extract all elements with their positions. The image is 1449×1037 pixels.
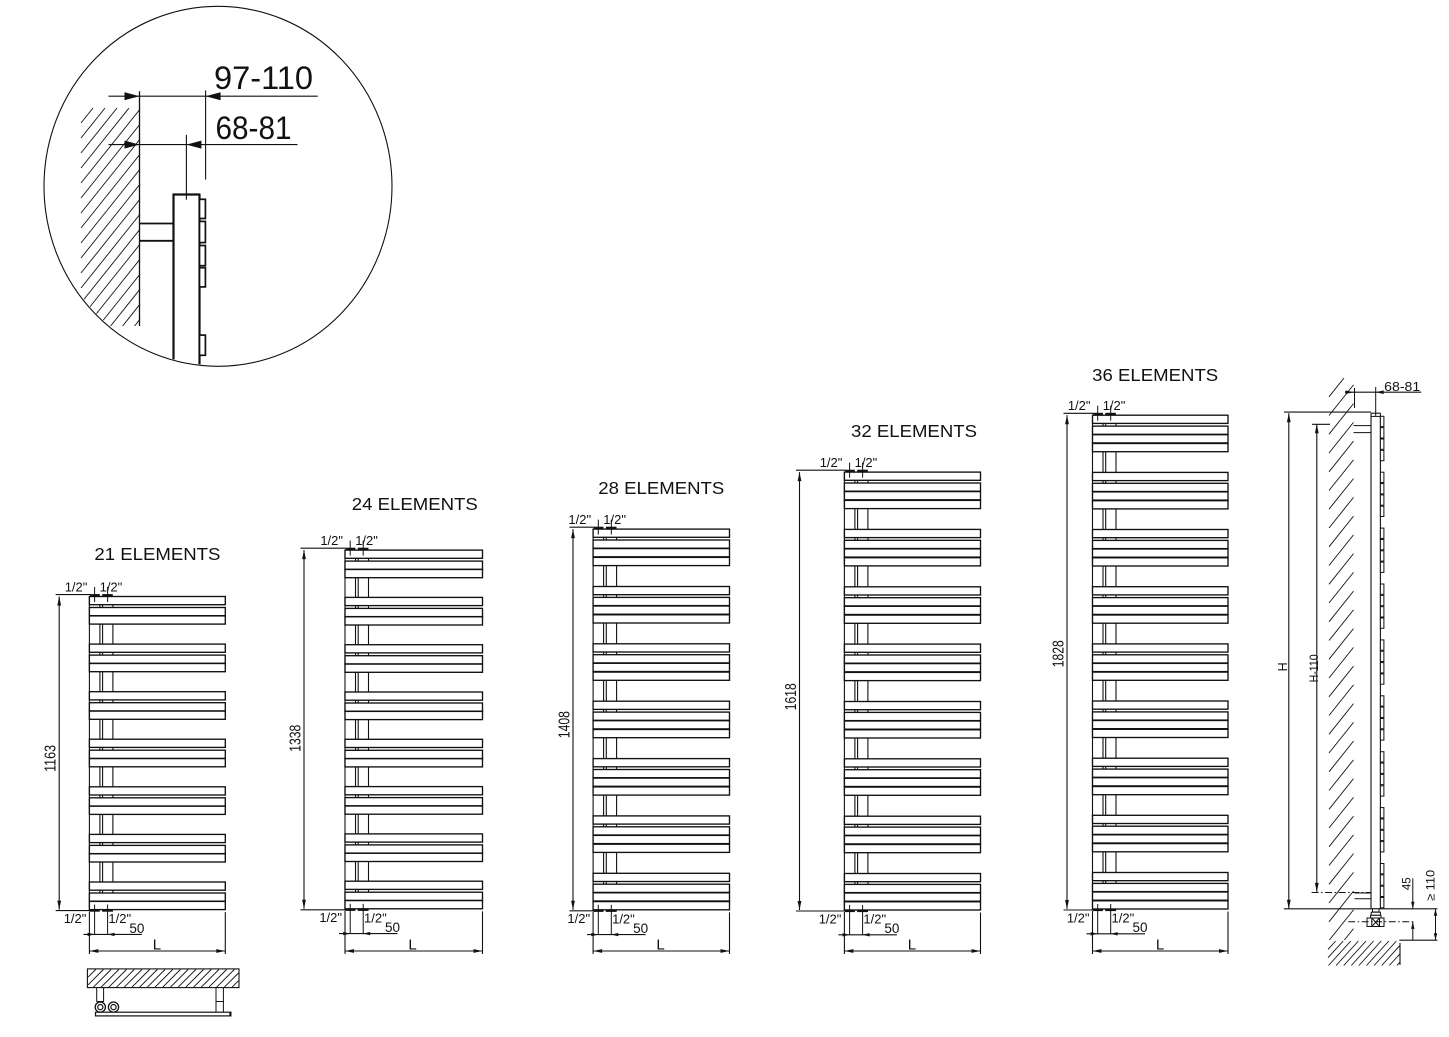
svg-text:H-110: H-110: [1307, 654, 1321, 682]
svg-text:L: L: [153, 937, 161, 954]
svg-text:50: 50: [633, 921, 648, 936]
svg-text:≥ 110: ≥ 110: [1423, 870, 1437, 901]
svg-text:1828: 1828: [1051, 640, 1068, 667]
svg-text:1/2": 1/2": [820, 455, 843, 470]
svg-text:1/2": 1/2": [1112, 911, 1135, 926]
svg-text:1338: 1338: [288, 725, 305, 752]
svg-text:1/2": 1/2": [1068, 398, 1091, 413]
svg-text:1163: 1163: [43, 745, 60, 772]
svg-text:1/2": 1/2": [319, 910, 342, 925]
svg-text:97-110: 97-110: [214, 60, 313, 96]
svg-text:L: L: [908, 937, 916, 954]
svg-text:50: 50: [884, 921, 899, 936]
svg-text:L: L: [408, 937, 416, 954]
svg-text:1/2": 1/2": [603, 512, 626, 527]
svg-text:50: 50: [385, 920, 400, 935]
svg-text:1/2": 1/2": [855, 455, 878, 470]
svg-text:1/2": 1/2": [568, 512, 591, 527]
svg-text:H: H: [1276, 662, 1290, 671]
svg-text:1/2": 1/2": [1103, 398, 1126, 413]
svg-text:1/2": 1/2": [819, 911, 842, 926]
svg-text:45: 45: [1402, 877, 1414, 890]
svg-text:21 ELEMENTS: 21 ELEMENTS: [94, 544, 220, 564]
svg-text:1/2": 1/2": [100, 579, 123, 594]
svg-text:68-81: 68-81: [216, 110, 292, 146]
svg-text:1/2": 1/2": [1067, 910, 1090, 925]
svg-text:1/2": 1/2": [108, 911, 131, 926]
svg-text:1/2": 1/2": [65, 579, 88, 594]
svg-text:68-81: 68-81: [1384, 379, 1420, 394]
svg-text:1/2": 1/2": [355, 533, 378, 548]
svg-text:1/2": 1/2": [567, 911, 590, 926]
svg-text:1/2": 1/2": [612, 911, 635, 926]
svg-text:1/2": 1/2": [320, 533, 343, 548]
svg-text:50: 50: [1133, 920, 1148, 935]
svg-text:24 ELEMENTS: 24 ELEMENTS: [352, 494, 478, 514]
svg-text:50: 50: [129, 921, 144, 936]
svg-text:1/2": 1/2": [64, 911, 87, 926]
svg-text:1618: 1618: [783, 683, 800, 710]
svg-text:L: L: [656, 937, 664, 954]
svg-text:28 ELEMENTS: 28 ELEMENTS: [598, 478, 724, 498]
svg-text:1/2": 1/2": [364, 910, 387, 925]
svg-text:36 ELEMENTS: 36 ELEMENTS: [1092, 365, 1218, 385]
svg-text:1/2": 1/2": [863, 912, 886, 927]
svg-text:32 ELEMENTS: 32 ELEMENTS: [851, 421, 977, 441]
svg-text:1408: 1408: [557, 711, 574, 738]
svg-text:L: L: [1156, 937, 1164, 954]
